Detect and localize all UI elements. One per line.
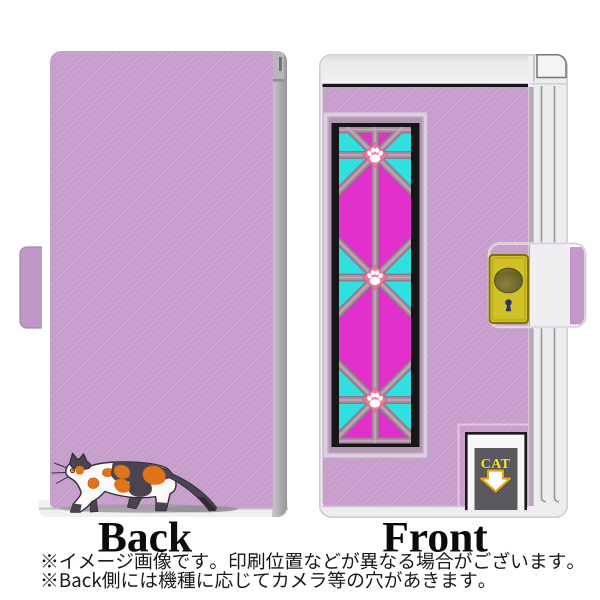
- svg-text:Front: Front: [382, 514, 488, 562]
